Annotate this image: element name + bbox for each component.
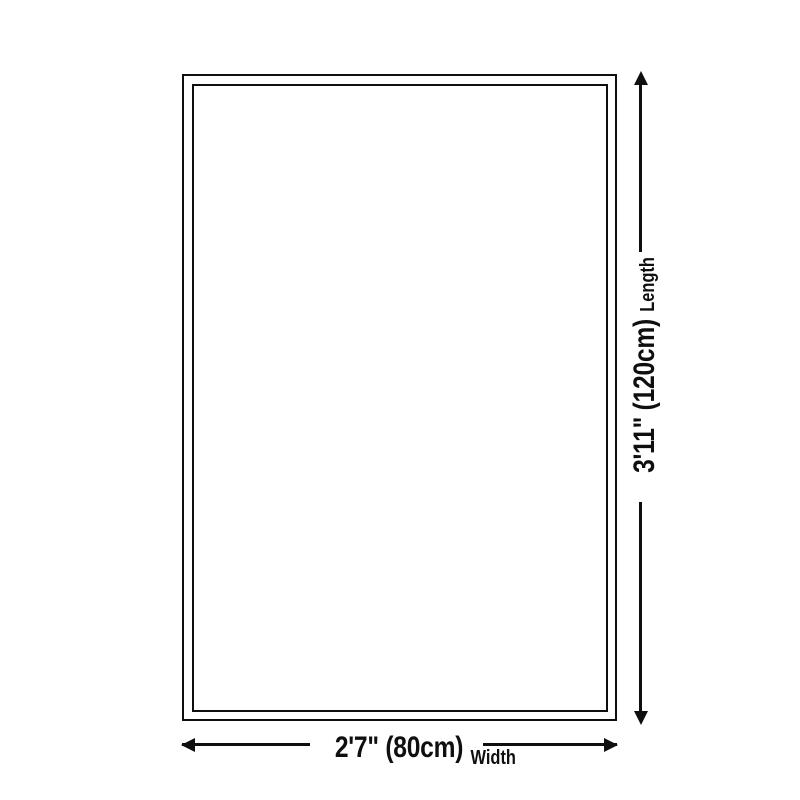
rug-outline-inner [192, 84, 608, 712]
width-arrow-right-icon [604, 738, 618, 752]
width-arrow-left-icon [181, 738, 195, 752]
width-dimension-label: 2'7" (80cm) Width [335, 733, 463, 763]
length-unit-label: Length [638, 257, 658, 312]
dimension-diagram: 3'11" (120cm) Length 2'7" (80cm) Width [0, 0, 800, 800]
length-arrow-down-icon [634, 711, 648, 725]
width-unit-label: Width [471, 748, 516, 768]
length-arrow-line-lower [639, 502, 642, 714]
width-value: 2'7" (80cm) [335, 733, 463, 763]
width-arrow-line-left [182, 743, 310, 746]
rug-outline-outer [182, 74, 617, 721]
length-arrow-line-upper [639, 78, 642, 252]
length-value: 3'11" (120cm) [630, 319, 660, 473]
length-arrow-up-icon [634, 71, 648, 85]
length-dimension-label: 3'11" (120cm) Length [630, 319, 660, 473]
width-arrow-line-right [483, 743, 617, 746]
